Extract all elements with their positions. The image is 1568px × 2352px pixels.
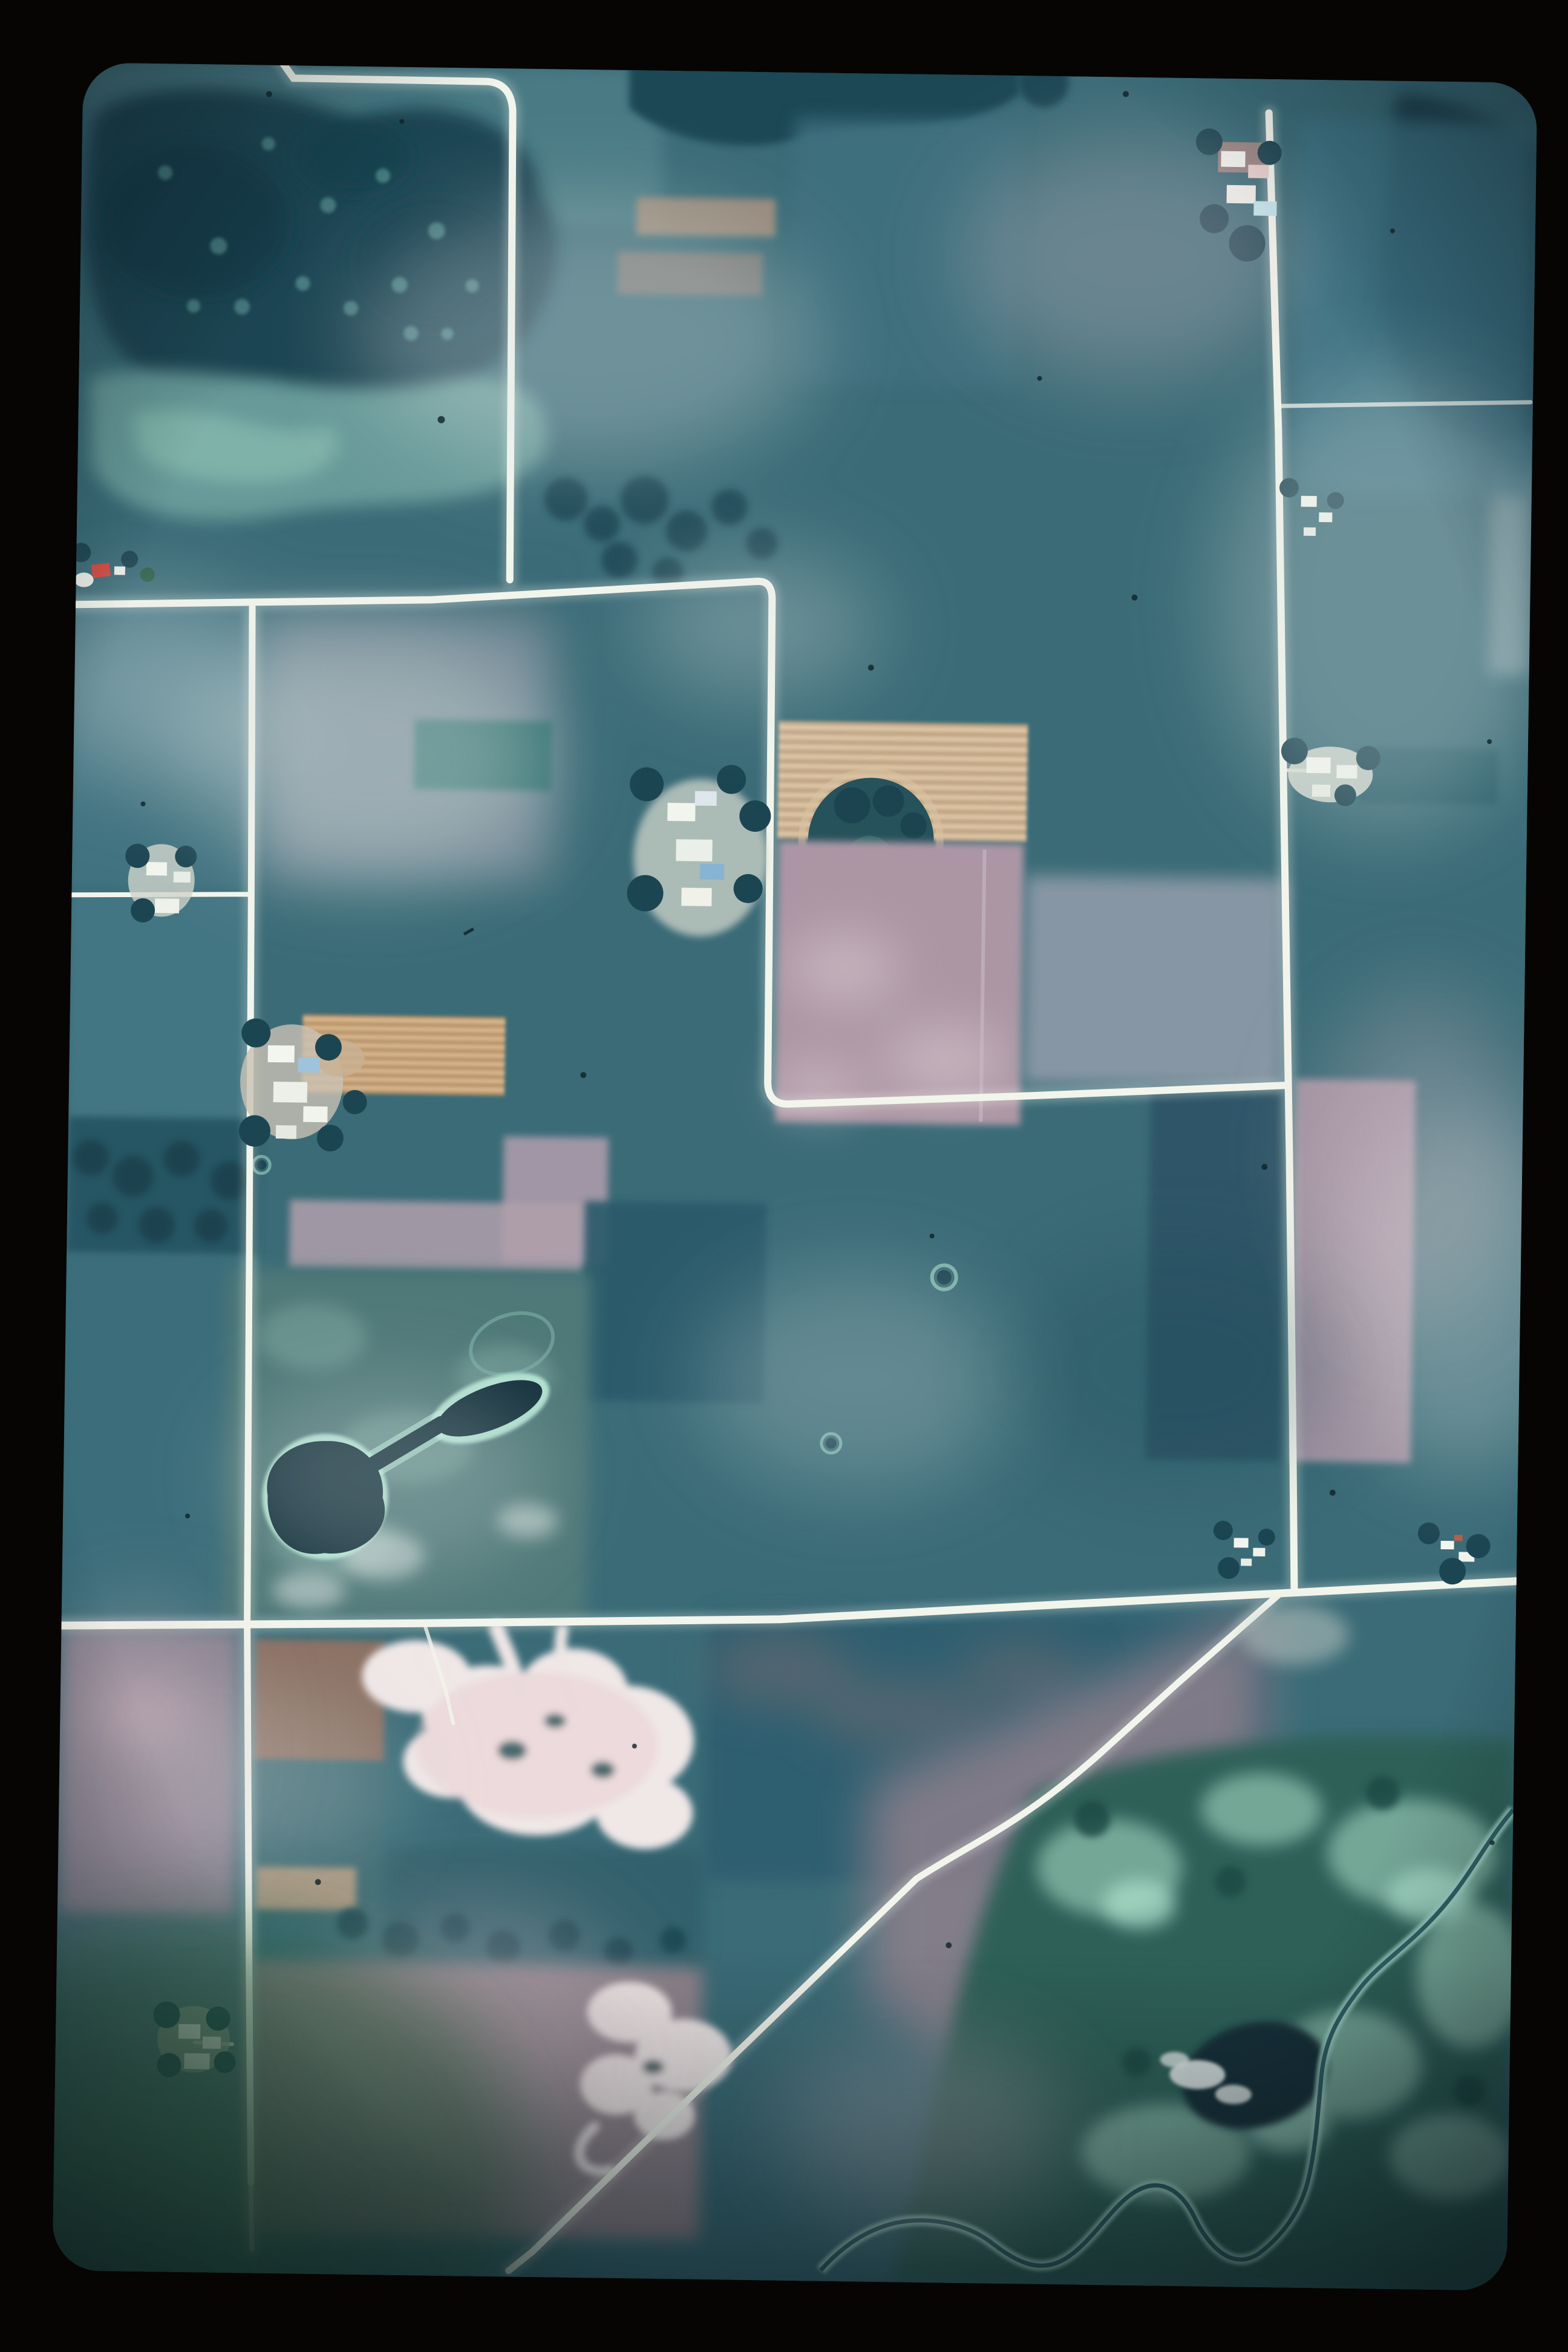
slide-scan bbox=[0, 0, 1568, 2352]
film-frame bbox=[0, 27, 1568, 2352]
aerial-photo-svg bbox=[0, 0, 1568, 2352]
